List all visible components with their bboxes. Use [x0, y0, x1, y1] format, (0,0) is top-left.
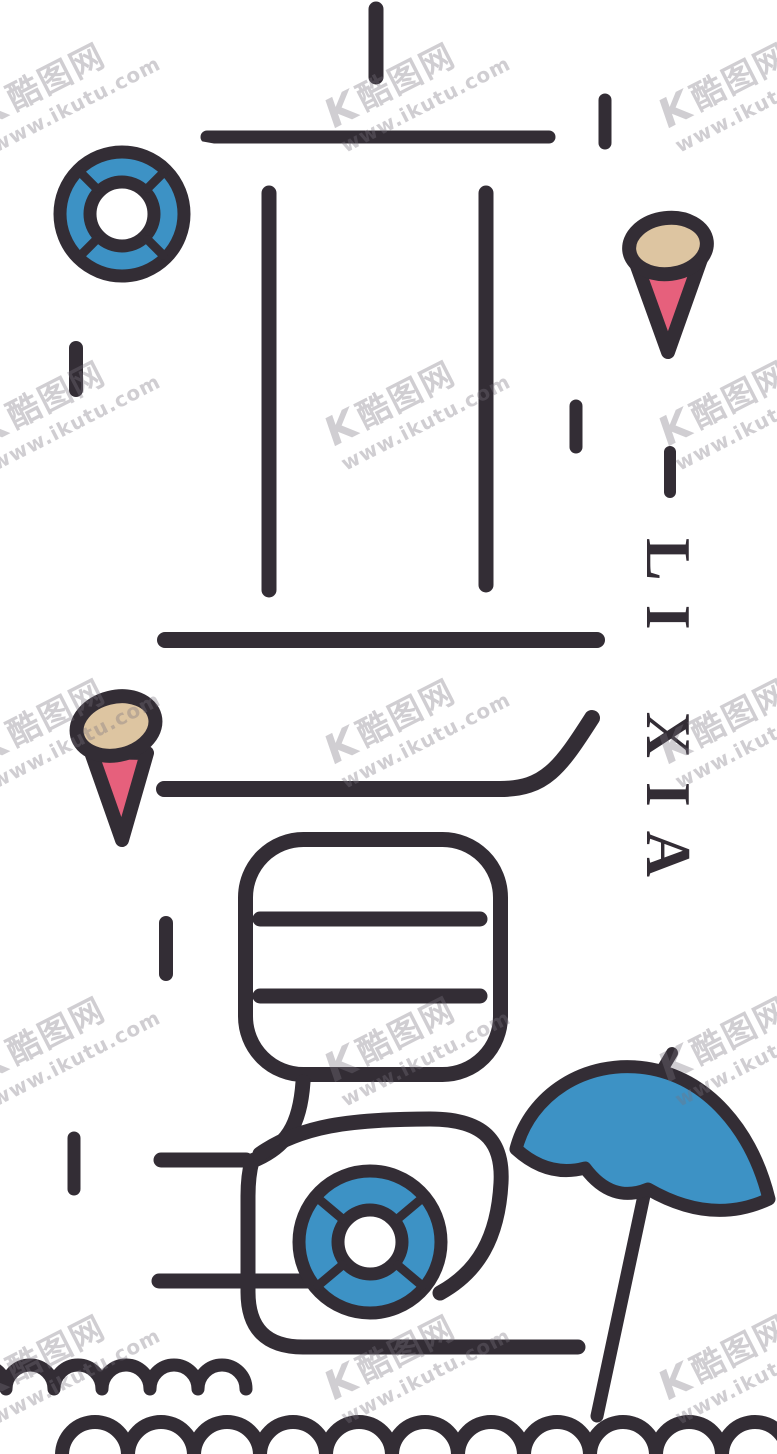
umbrella-pole [597, 1186, 646, 1416]
ice-cream-cone [91, 752, 147, 840]
character-eye-box [246, 840, 501, 1075]
poster-title-vertical: LI XIA [636, 538, 700, 901]
lifebuoy-inner-outline [338, 1210, 402, 1274]
beach-umbrella-icon [516, 1053, 769, 1416]
wave-row-large [62, 1422, 777, 1454]
lifebuoy-icon-bottom [299, 1171, 441, 1313]
character-stroke-group-top [164, 9, 597, 789]
eye-box-outline [246, 840, 501, 1075]
ice-cream-scoop [626, 213, 710, 278]
lifebuoy-icon-top [60, 152, 184, 276]
umbrella-canopy [516, 1067, 769, 1211]
ice-cream-icon-left [70, 688, 162, 840]
wave-row-small [0, 1365, 246, 1389]
curved-hook-stroke [164, 718, 592, 789]
ice-cream-icon-right [626, 213, 710, 352]
lixia-summer-poster: LI XIA K酷图网 www.ikutu.com K酷图网 www.ikutu… [0, 0, 777, 1454]
waves-icon [0, 1365, 777, 1454]
